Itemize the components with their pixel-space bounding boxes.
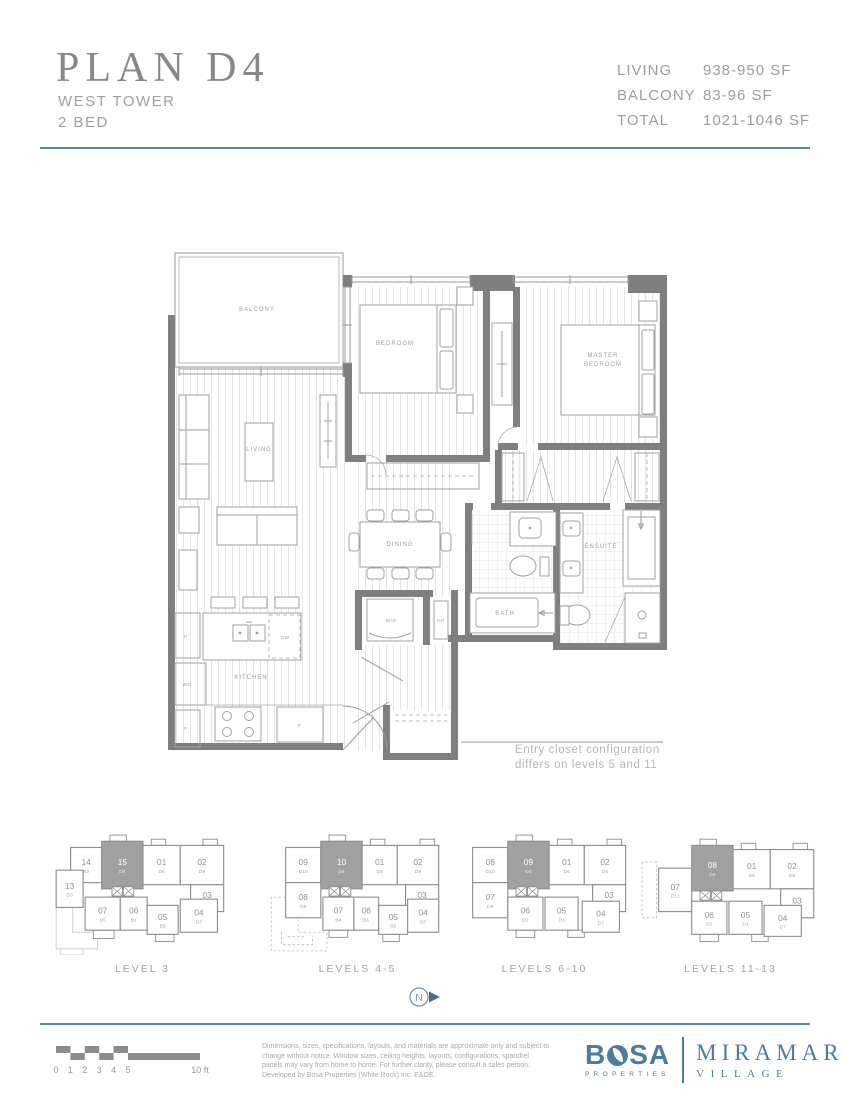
room-label-ensuite: ENSUITE [584,544,617,550]
svg-text:2: 2 [82,1065,87,1075]
room-label-master-2: BEDROOM [584,362,622,368]
svg-text:06: 06 [521,907,531,916]
keyplan-levels-4-5-caption: LEVELS 4-5 [265,963,450,975]
room-label-hp: HP [437,618,445,624]
bosa-logo: BSA PROPERTIES [585,1042,670,1078]
keyplan-levels-4-5-drawing: 09D1010D401D602D908D803B307B406B105B504D… [265,833,450,955]
svg-text:D2: D2 [522,917,529,923]
svg-text:0: 0 [53,1065,58,1075]
room-label-dw: DW [281,635,290,641]
svg-text:B1: B1 [131,917,137,923]
miramar-village-logo: MIRAMAR VILLAGE [696,1040,843,1080]
svg-text:D9: D9 [602,869,609,875]
svg-text:D4: D4 [119,869,126,875]
stat-living: LIVING 938-950 SF [617,62,810,79]
svg-text:05: 05 [557,907,567,916]
svg-text:10 ft: 10 ft [191,1065,209,1075]
svg-text:04: 04 [194,909,204,918]
room-label-p1: P [184,634,188,640]
svg-text:D4: D4 [338,869,345,875]
room-label-bath: BATH [495,611,515,617]
svg-text:07: 07 [671,883,681,892]
svg-text:01: 01 [562,858,572,867]
svg-text:05: 05 [389,913,399,922]
svg-text:D7: D7 [196,919,203,925]
svg-text:D2: D2 [706,922,713,928]
svg-text:06: 06 [362,907,372,916]
svg-text:08: 08 [299,893,309,902]
bosa-letter-b: B [585,1042,606,1068]
svg-text:04: 04 [419,909,429,918]
keyplan-levels-6-10-drawing: 08D1009D401D602D907D803B306D205D104D7 [452,833,637,955]
svg-text:07: 07 [98,907,108,916]
svg-text:02: 02 [787,862,797,871]
disclaimer-text: Dimensions, sizes, specifications, layou… [262,1042,550,1080]
svg-text:06: 06 [705,911,715,920]
subtitle-tower: WEST TOWER [58,93,176,110]
keyplan-level-3-drawing: 14B215D401D602D913D303B307D506B105B504D7 [50,833,235,955]
svg-text:B5: B5 [160,924,166,930]
room-label-kitchen: KITCHEN [234,675,267,681]
stat-total-value: 1021-1046 SF [703,112,810,129]
svg-text:01: 01 [157,858,167,867]
svg-text:14: 14 [82,858,92,867]
svg-text:04: 04 [596,910,606,919]
svg-text:B4: B4 [335,917,341,923]
room-label-p2: P [184,726,188,732]
svg-text:D5: D5 [100,917,107,923]
svg-text:B5: B5 [390,924,396,930]
keyplan-levels-11-13: 07D1208D401D602D903B306D205D104D7 LEVELS… [638,833,823,975]
scale-bar: 01234510 ft [52,1040,222,1080]
stat-total-label: TOTAL [617,112,703,129]
keyplan-levels-11-13-caption: LEVELS 11-13 [638,963,823,975]
stat-balcony: BALCONY 83-96 SF [617,87,810,104]
north-label: N [415,992,423,1004]
bosa-o-leaf-icon [607,1045,628,1066]
svg-text:D9: D9 [789,873,796,879]
svg-text:5: 5 [125,1065,130,1075]
svg-text:D1: D1 [558,917,565,923]
room-label-living: LIVING [246,447,272,453]
svg-text:08: 08 [486,858,496,867]
room-label-f: F [298,723,301,729]
keyplan-levels-6-10-caption: LEVELS 6-10 [452,963,637,975]
svg-text:D6: D6 [377,869,384,875]
miramar-wordmark: MIRAMAR [696,1040,843,1066]
svg-text:09: 09 [524,858,534,867]
page-title: PLAN D4 [56,44,270,92]
stat-total: TOTAL 1021-1046 SF [617,112,810,129]
keyplan-levels-11-13-drawing: 07D1208D401D602D903B306D205D104D7 [638,833,823,955]
north-indicator: N [402,984,446,1010]
svg-text:D7: D7 [420,919,427,925]
stat-balcony-label: BALCONY [617,87,703,104]
svg-text:02: 02 [600,858,610,867]
svg-text:13: 13 [65,882,75,891]
svg-text:08: 08 [708,861,718,870]
svg-text:D6: D6 [564,869,571,875]
room-label-wo: WO [182,682,191,688]
svg-text:02: 02 [413,858,423,867]
entry-closet-note-line1: Entry closet configuration [515,743,660,758]
room-label-master-1: MASTER [587,353,618,359]
svg-text:03: 03 [793,896,803,905]
svg-text:03: 03 [605,891,615,900]
svg-text:D6: D6 [158,869,165,875]
entry-closet-note-line2: differs on levels 5 and 11 [515,758,660,773]
svg-text:05: 05 [158,913,168,922]
keyplan-levels-4-5: 09D1010D401D602D908D803B307B406B105B504D… [265,833,450,975]
svg-text:D8: D8 [300,904,307,910]
entry-closet-note: Entry closet configuration differs on le… [515,743,660,773]
svg-text:D7: D7 [598,921,605,927]
svg-text:04: 04 [778,914,788,923]
svg-text:D3: D3 [66,893,73,899]
bosa-letters-sa: SA [629,1042,670,1068]
room-label-dining: DINING [387,542,414,548]
svg-text:3: 3 [97,1065,102,1075]
svg-text:D7: D7 [780,925,787,931]
svg-text:B2: B2 [83,869,89,875]
keyplan-level-3: 14B215D401D602D913D303B307D506B105B504D7… [50,833,235,975]
logo-divider [682,1037,684,1083]
area-stats: LIVING 938-950 SF BALCONY 83-96 SF TOTAL… [617,62,810,137]
svg-text:D9: D9 [199,869,206,875]
svg-text:D6: D6 [749,873,756,879]
svg-text:05: 05 [741,911,751,920]
header-divider [40,147,810,149]
village-wordmark: VILLAGE [696,1068,843,1080]
svg-text:09: 09 [299,858,309,867]
stat-living-label: LIVING [617,62,703,79]
svg-text:D10: D10 [299,869,308,875]
subtitle-beds: 2 BED [58,114,109,131]
bosa-wordmark: BSA [585,1042,670,1068]
svg-text:06: 06 [129,907,139,916]
svg-text:10: 10 [337,858,347,867]
svg-text:D8: D8 [487,904,494,910]
svg-text:4: 4 [111,1065,116,1075]
svg-text:02: 02 [197,858,207,867]
bosa-properties-label: PROPERTIES [585,1071,670,1078]
north-arrow-icon [429,992,440,1003]
svg-text:D1: D1 [742,922,749,928]
svg-text:D9: D9 [415,869,422,875]
svg-text:01: 01 [747,862,757,871]
floor-plan: BALCONY LIVING BEDROOM MASTER BEDROOM DI… [155,245,685,790]
footer-divider [40,1023,810,1025]
svg-text:B1: B1 [363,917,369,923]
room-label-balcony: BALCONY [239,307,275,313]
logo-block: BSA PROPERTIES MIRAMAR VILLAGE [585,1037,844,1083]
svg-text:D12: D12 [671,894,680,900]
svg-text:07: 07 [486,893,496,902]
keyplan-levels-6-10: 08D1009D401D602D907D803B306D205D104D7 LE… [452,833,637,975]
svg-text:01: 01 [375,858,385,867]
stat-living-value: 938-950 SF [703,62,791,79]
svg-text:07: 07 [334,907,344,916]
svg-text:1: 1 [68,1065,73,1075]
svg-text:D4: D4 [709,872,716,878]
room-label-bedroom: BEDROOM [376,341,414,347]
svg-text:D10: D10 [486,869,495,875]
floorplan-sheet: PLAN D4 WEST TOWER 2 BED LIVING 938-950 … [0,0,850,1100]
svg-text:15: 15 [118,858,128,867]
room-label-wd: W/D [386,618,397,624]
svg-text:D4: D4 [525,869,532,875]
keyplan-level-3-caption: LEVEL 3 [50,963,235,975]
stat-balcony-value: 83-96 SF [703,87,773,104]
